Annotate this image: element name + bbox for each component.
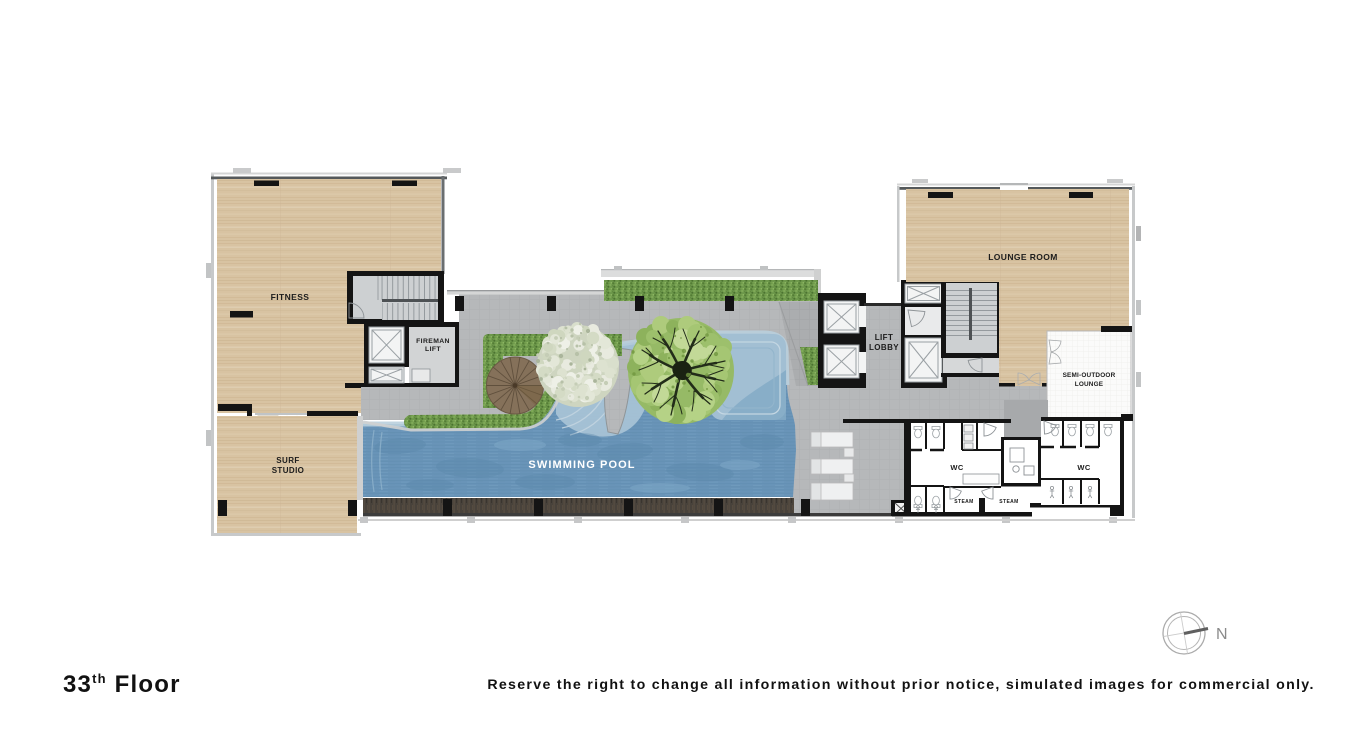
svg-text:SWIMMING POOL: SWIMMING POOL <box>528 459 635 471</box>
svg-text:FITNESS: FITNESS <box>271 292 310 302</box>
svg-text:LIFT: LIFT <box>425 346 441 353</box>
svg-text:N: N <box>1216 626 1228 643</box>
svg-text:WC: WC <box>1077 463 1090 472</box>
svg-text:SURF: SURF <box>276 456 299 465</box>
svg-text:WC: WC <box>950 463 963 472</box>
svg-text:LIFT: LIFT <box>875 333 893 342</box>
svg-text:STUDIO: STUDIO <box>272 466 305 475</box>
svg-text:LOBBY: LOBBY <box>869 343 899 352</box>
svg-text:FIREMAN: FIREMAN <box>416 338 450 345</box>
svg-text:LOUNGE: LOUNGE <box>1075 381 1104 388</box>
svg-text:LOUNGE ROOM: LOUNGE ROOM <box>988 252 1058 262</box>
svg-text:STEAM: STEAM <box>999 499 1019 505</box>
svg-text:SEMI-OUTDOOR: SEMI-OUTDOOR <box>1063 372 1116 379</box>
svg-text:STEAM: STEAM <box>954 499 974 505</box>
